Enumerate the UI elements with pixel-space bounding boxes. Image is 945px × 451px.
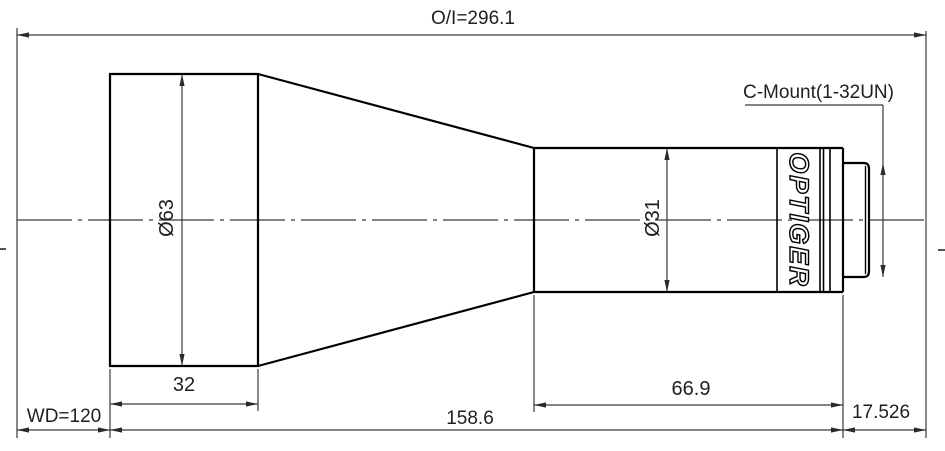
lens-mechanical-drawing: O/I=296.1 C-Mount(1-32UN) WD=120 32 158.… — [0, 0, 945, 451]
arrow-wd-left — [17, 427, 29, 432]
arrow-cmount-top — [880, 163, 885, 175]
arrow-cmount-bottom — [880, 265, 885, 277]
arrow-dia63-bottom — [179, 354, 184, 366]
arrow-32-left — [110, 401, 122, 406]
arrow-wd-right — [98, 427, 110, 432]
arrow-dia31-bottom — [664, 280, 669, 292]
arrow-669-left — [534, 402, 546, 407]
front-length-label: 32 — [154, 375, 214, 396]
arrow-dia63-top — [179, 74, 184, 86]
working-distance-label: WD=120 — [24, 407, 104, 427]
arrow-17526-right — [914, 427, 926, 432]
overall-dimension-label: O/I=296.1 — [403, 9, 543, 29]
cmount-label: C-Mount(1-32UN) — [743, 83, 887, 103]
body-length-label: 158.6 — [430, 409, 510, 429]
arrow-32-right — [246, 401, 258, 406]
rear-diameter-label: Ø31 — [643, 178, 667, 258]
arrow-1586-right — [831, 427, 843, 432]
rear-length-label: 66.9 — [651, 379, 731, 400]
arrow-oi-right — [914, 32, 926, 37]
arrow-dia31-top — [664, 148, 669, 160]
brand-text-optiger: OPTIGER — [782, 140, 816, 300]
front-diameter-label: Ø63 — [157, 178, 181, 258]
taper-bottom-edge — [258, 292, 534, 366]
arrow-1586-left — [110, 427, 122, 432]
taper-top-edge — [258, 74, 534, 148]
arrow-17526-left — [843, 427, 855, 432]
arrow-oi-left — [17, 32, 29, 37]
flange-distance-label: 17.526 — [841, 403, 921, 423]
